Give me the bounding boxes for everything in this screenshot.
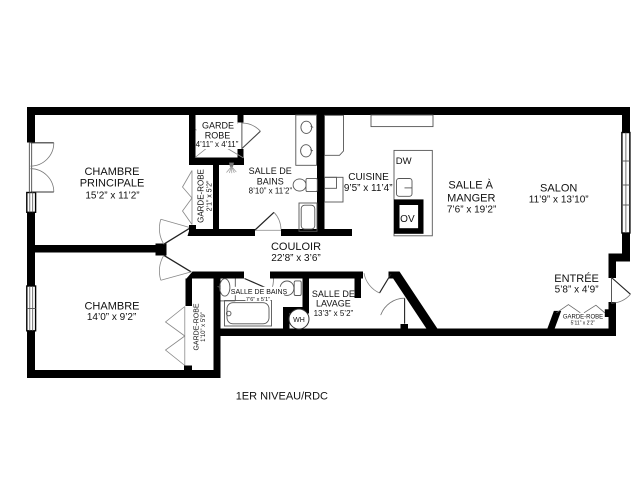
- svg-text:OV: OV: [400, 214, 415, 225]
- svg-text:SALLE DE: SALLE DE: [249, 166, 292, 176]
- svg-text:7’6” x 5’1”: 7’6” x 5’1”: [246, 297, 270, 303]
- svg-text:SALLE DE: SALLE DE: [312, 289, 355, 299]
- svg-text:GARDE-ROBE: GARDE-ROBE: [194, 303, 201, 350]
- svg-text:1’10” x 5’9”: 1’10” x 5’9”: [201, 312, 207, 342]
- svg-text:4’11” x 4’11”: 4’11” x 4’11”: [196, 140, 239, 149]
- svg-text:15’2” x 11’2”: 15’2” x 11’2”: [85, 190, 139, 201]
- svg-text:11’9” x 13’10”: 11’9” x 13’10”: [529, 195, 589, 206]
- svg-text:CHAMBRE: CHAMBRE: [84, 300, 139, 312]
- svg-text:WH: WH: [293, 317, 305, 324]
- svg-text:CUISINE: CUISINE: [348, 172, 389, 183]
- svg-text:ENTRÉE: ENTRÉE: [554, 272, 599, 285]
- svg-text:8’10” x 11’2”: 8’10” x 11’2”: [249, 186, 293, 195]
- svg-text:22’8” x 3’6”: 22’8” x 3’6”: [271, 253, 320, 264]
- svg-text:MANGER: MANGER: [447, 192, 495, 204]
- svg-text:14’0” x 9’2”: 14’0” x 9’2”: [87, 312, 136, 323]
- svg-text:7’6” x 19’2”: 7’6” x 19’2”: [447, 204, 496, 215]
- svg-text:5’11” x 2’2”: 5’11” x 2’2”: [571, 321, 596, 327]
- svg-text:PRINCIPALE: PRINCIPALE: [80, 177, 145, 189]
- svg-text:SALON: SALON: [540, 183, 577, 195]
- svg-text:2’1” x 5’2”: 2’1” x 5’2”: [207, 180, 214, 211]
- svg-text:DW: DW: [396, 156, 412, 167]
- svg-text:ROBE: ROBE: [205, 130, 231, 140]
- svg-text:SALLE DE BAINS: SALLE DE BAINS: [231, 289, 288, 296]
- svg-text:BAINS: BAINS: [257, 177, 284, 187]
- svg-text:GARDE-ROBE: GARDE-ROBE: [197, 169, 206, 223]
- svg-text:CHAMBRE: CHAMBRE: [84, 166, 139, 178]
- svg-text:13’3” x 5’2”: 13’3” x 5’2”: [314, 309, 354, 318]
- svg-text:LAVAGE: LAVAGE: [316, 299, 351, 309]
- svg-text:1ER NIVEAU/RDC: 1ER NIVEAU/RDC: [236, 391, 328, 403]
- svg-text:9’5” x 11’4”: 9’5” x 11’4”: [344, 183, 393, 194]
- svg-text:GARDE: GARDE: [202, 121, 234, 131]
- svg-text:COULOIR: COULOIR: [271, 241, 321, 253]
- svg-text:SALLE À: SALLE À: [448, 178, 493, 191]
- svg-text:5’8” x 4’9”: 5’8” x 4’9”: [555, 284, 599, 295]
